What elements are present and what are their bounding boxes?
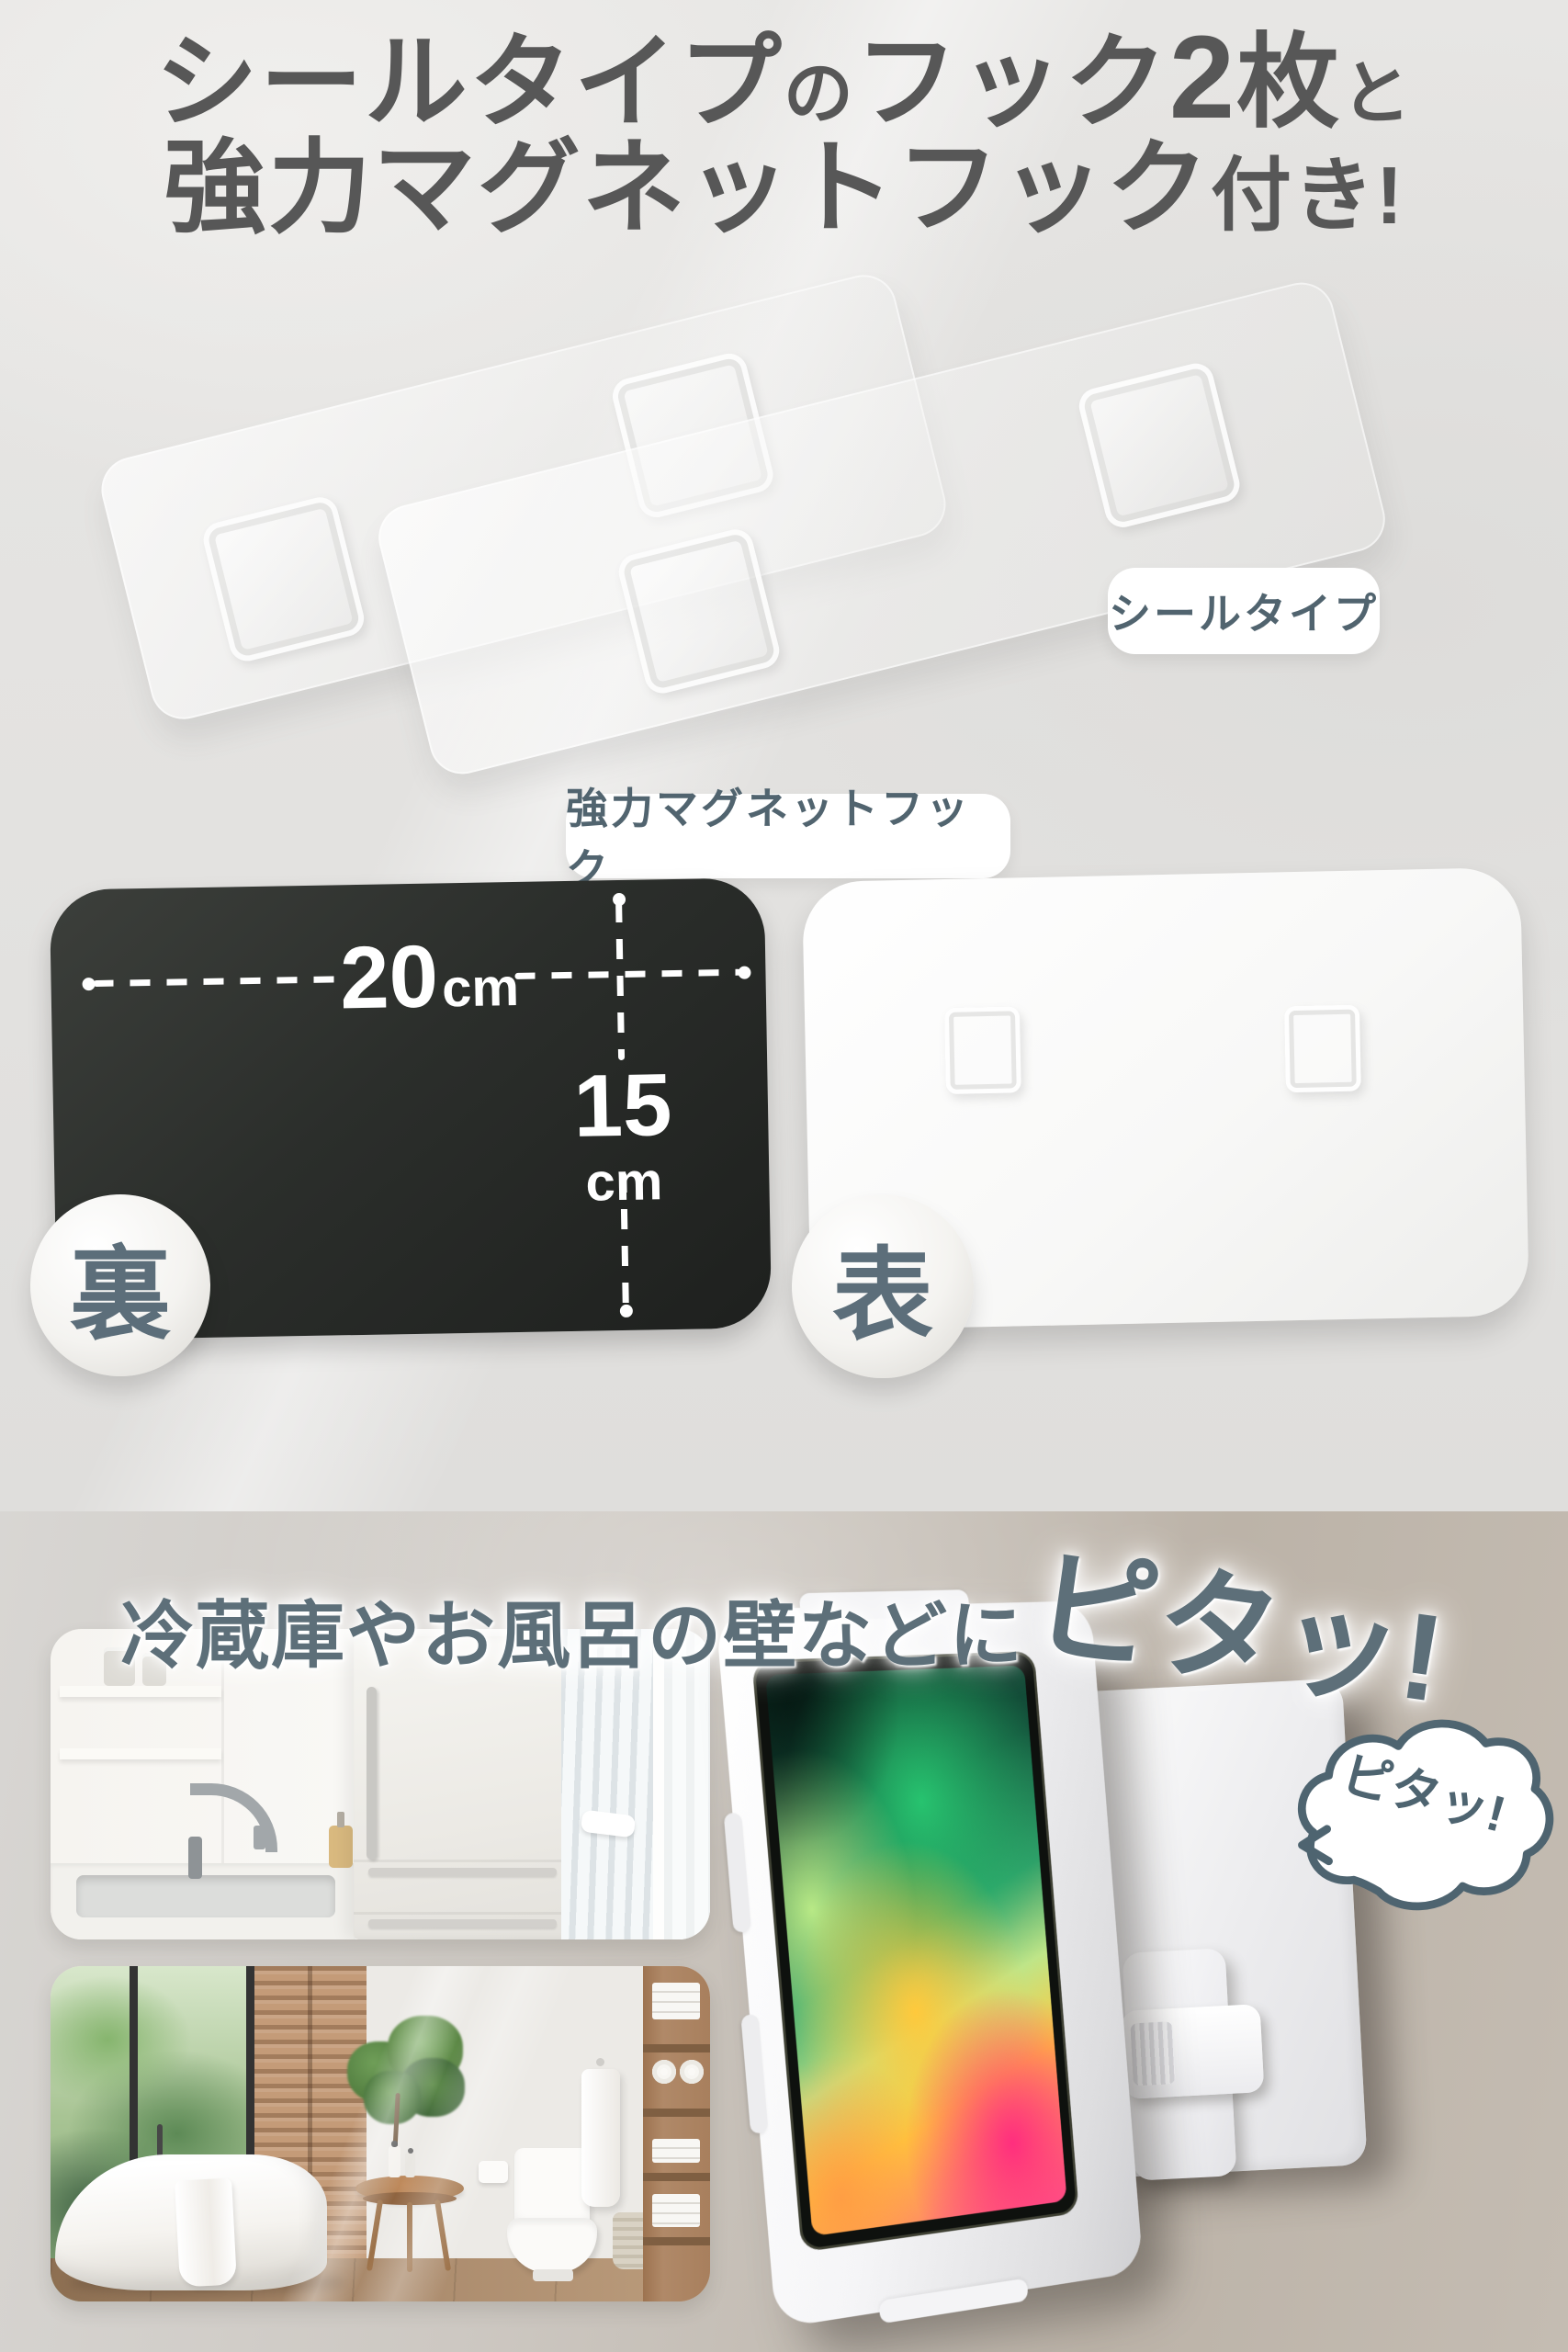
refrigerator-drawer-handle (368, 1919, 557, 1928)
headline-seg-no: の (784, 55, 855, 133)
toilet-paper-holder (479, 2161, 508, 2183)
width-dimension-line (514, 969, 740, 979)
dimension-endpoint-dot (620, 1305, 633, 1317)
headline-seg-count: 2 (1169, 12, 1236, 143)
refrigerator-handle (367, 1687, 377, 1860)
usage-section-wall: 冷蔵庫やお風呂の壁などにピタッ! (0, 1511, 1568, 2352)
top-headline-line2: 強力マグネットフック付き! (0, 135, 1568, 242)
soap-bottle (329, 1826, 353, 1868)
tablet-screen-wallpaper (765, 1666, 1066, 2236)
width-dimension-label: 20 cm (336, 921, 522, 1034)
top-headline: シールタイプのフック2枚と 強力マグネットフック付き! (0, 17, 1568, 243)
bathroom-photo (51, 1966, 710, 2301)
screen-glare (765, 1666, 1066, 2236)
front-hook-square (1284, 1005, 1361, 1093)
usage-headline: 冷蔵庫やお風呂の壁などにピタッ! (0, 1519, 1568, 1697)
back-side-badge: 裏 (30, 1194, 210, 1376)
front-side-badge: 表 (792, 1194, 974, 1378)
mount-hinge-latch (1121, 2004, 1265, 2099)
potted-plant-leaves (340, 2014, 468, 2124)
shelf-board (643, 2109, 710, 2117)
hinge-grip-ribs (1130, 2021, 1175, 2086)
top-section-wall: シールタイプのフック2枚と 強力マグネットフック付き! シールタイプ 強力マグネ… (0, 0, 1568, 1511)
shelf-board (643, 2173, 710, 2181)
width-value: 20 (339, 933, 438, 1023)
rolled-towel (680, 2060, 704, 2084)
hanging-towel (581, 2069, 620, 2207)
refrigerator-drawer-seam (354, 1860, 591, 1862)
folded-towel-stack (652, 1983, 700, 2019)
toiletry-bottle-cap (408, 2148, 413, 2154)
waterproof-tablet-case (716, 1600, 1144, 2328)
usage-headline-main: 冷蔵庫やお風呂の壁などに (120, 1595, 1024, 1677)
toilet-tank (514, 2148, 590, 2229)
folded-towel-stack (652, 2194, 700, 2227)
seal-hook-square (615, 526, 783, 697)
tablet-bezel (751, 1651, 1078, 2253)
dimension-endpoint-dot (613, 893, 626, 906)
kitchen-faucet-spout (254, 1826, 265, 1849)
towel-hook (596, 2058, 604, 2066)
top-headline-line1: シールタイプのフック2枚と (0, 17, 1568, 139)
seal-hook-square (199, 493, 367, 665)
dimension-endpoint-dot (82, 978, 95, 990)
width-dimension-line (94, 976, 342, 987)
seal-type-label: シールタイプ (1108, 568, 1380, 654)
dimension-endpoint-dot (738, 967, 750, 979)
headline-seg-sheets: 枚 (1236, 25, 1341, 140)
refrigerator-drawer-seam (354, 1912, 591, 1915)
shelf-board (643, 2237, 710, 2245)
bathtub-towel (175, 2177, 237, 2287)
headline-seg-included: 付き! (1211, 150, 1404, 241)
toilet-base (533, 2269, 573, 2281)
toiletry-bottle-cap (391, 2141, 398, 2147)
folded-towel-stack (652, 2139, 700, 2163)
case-side-button (740, 2014, 768, 2134)
kitchen-sink (76, 1875, 335, 1917)
plant-leaf-cluster (364, 2071, 421, 2124)
height-value: 15 (547, 1061, 699, 1152)
height-unit: cm (548, 1155, 700, 1211)
soap-bottle-pump (337, 1812, 344, 1827)
case-bottom-tab (879, 2278, 1029, 2324)
width-unit: cm (442, 961, 520, 1015)
height-dimension-line (615, 902, 625, 1060)
height-dimension-label: 15 cm (547, 1061, 700, 1211)
headline-seg-magnet-hook: 強力マグネットフック (164, 130, 1211, 245)
magnet-hook-label: 強力マグネットフック (566, 794, 1010, 878)
seal-hook-square (1076, 359, 1244, 531)
shelf-board (643, 2044, 710, 2052)
headline-seg-hook: フック (855, 25, 1169, 140)
toiletry-bottle (389, 2146, 400, 2177)
bathroom-shelf-unit (643, 1966, 710, 2301)
kitchen-shelf (60, 1748, 221, 1759)
front-hook-square (944, 1006, 1021, 1094)
refrigerator-drawer-handle (368, 1868, 557, 1876)
product-infographic: シールタイプのフック2枚と 強力マグネットフック付き! シールタイプ 強力マグネ… (0, 0, 1568, 2352)
kitchen-faucet-base (188, 1837, 202, 1879)
headline-seg-seal-type: シールタイプ (155, 25, 784, 140)
side-table-leg (407, 2202, 412, 2272)
headline-seg-to: と (1341, 55, 1413, 133)
case-side-button (724, 1813, 751, 1933)
rolled-towel (652, 2060, 676, 2084)
toiletry-bottle (405, 2153, 415, 2177)
